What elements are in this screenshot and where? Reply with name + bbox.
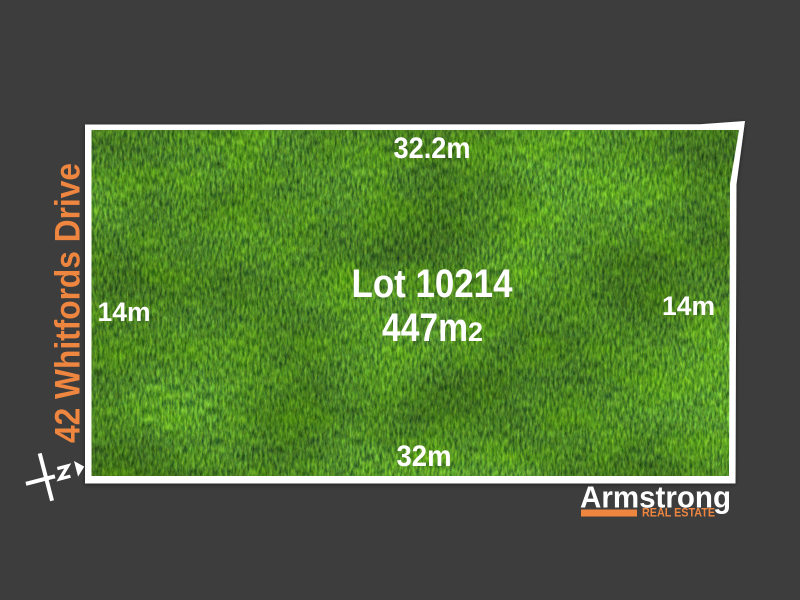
svg-text:Lot 10214: Lot 10214 xyxy=(352,262,514,306)
svg-text:2: 2 xyxy=(468,317,483,347)
svg-text:32.2m: 32.2m xyxy=(394,132,471,165)
svg-text:447m: 447m xyxy=(382,306,468,350)
svg-text:42 Whitfords Drive: 42 Whitfords Drive xyxy=(49,163,88,443)
svg-text:32m: 32m xyxy=(397,440,452,473)
svg-text:14m: 14m xyxy=(98,297,151,327)
svg-text:REAL ESTATE: REAL ESTATE xyxy=(642,508,715,520)
svg-text:14m: 14m xyxy=(662,291,715,321)
